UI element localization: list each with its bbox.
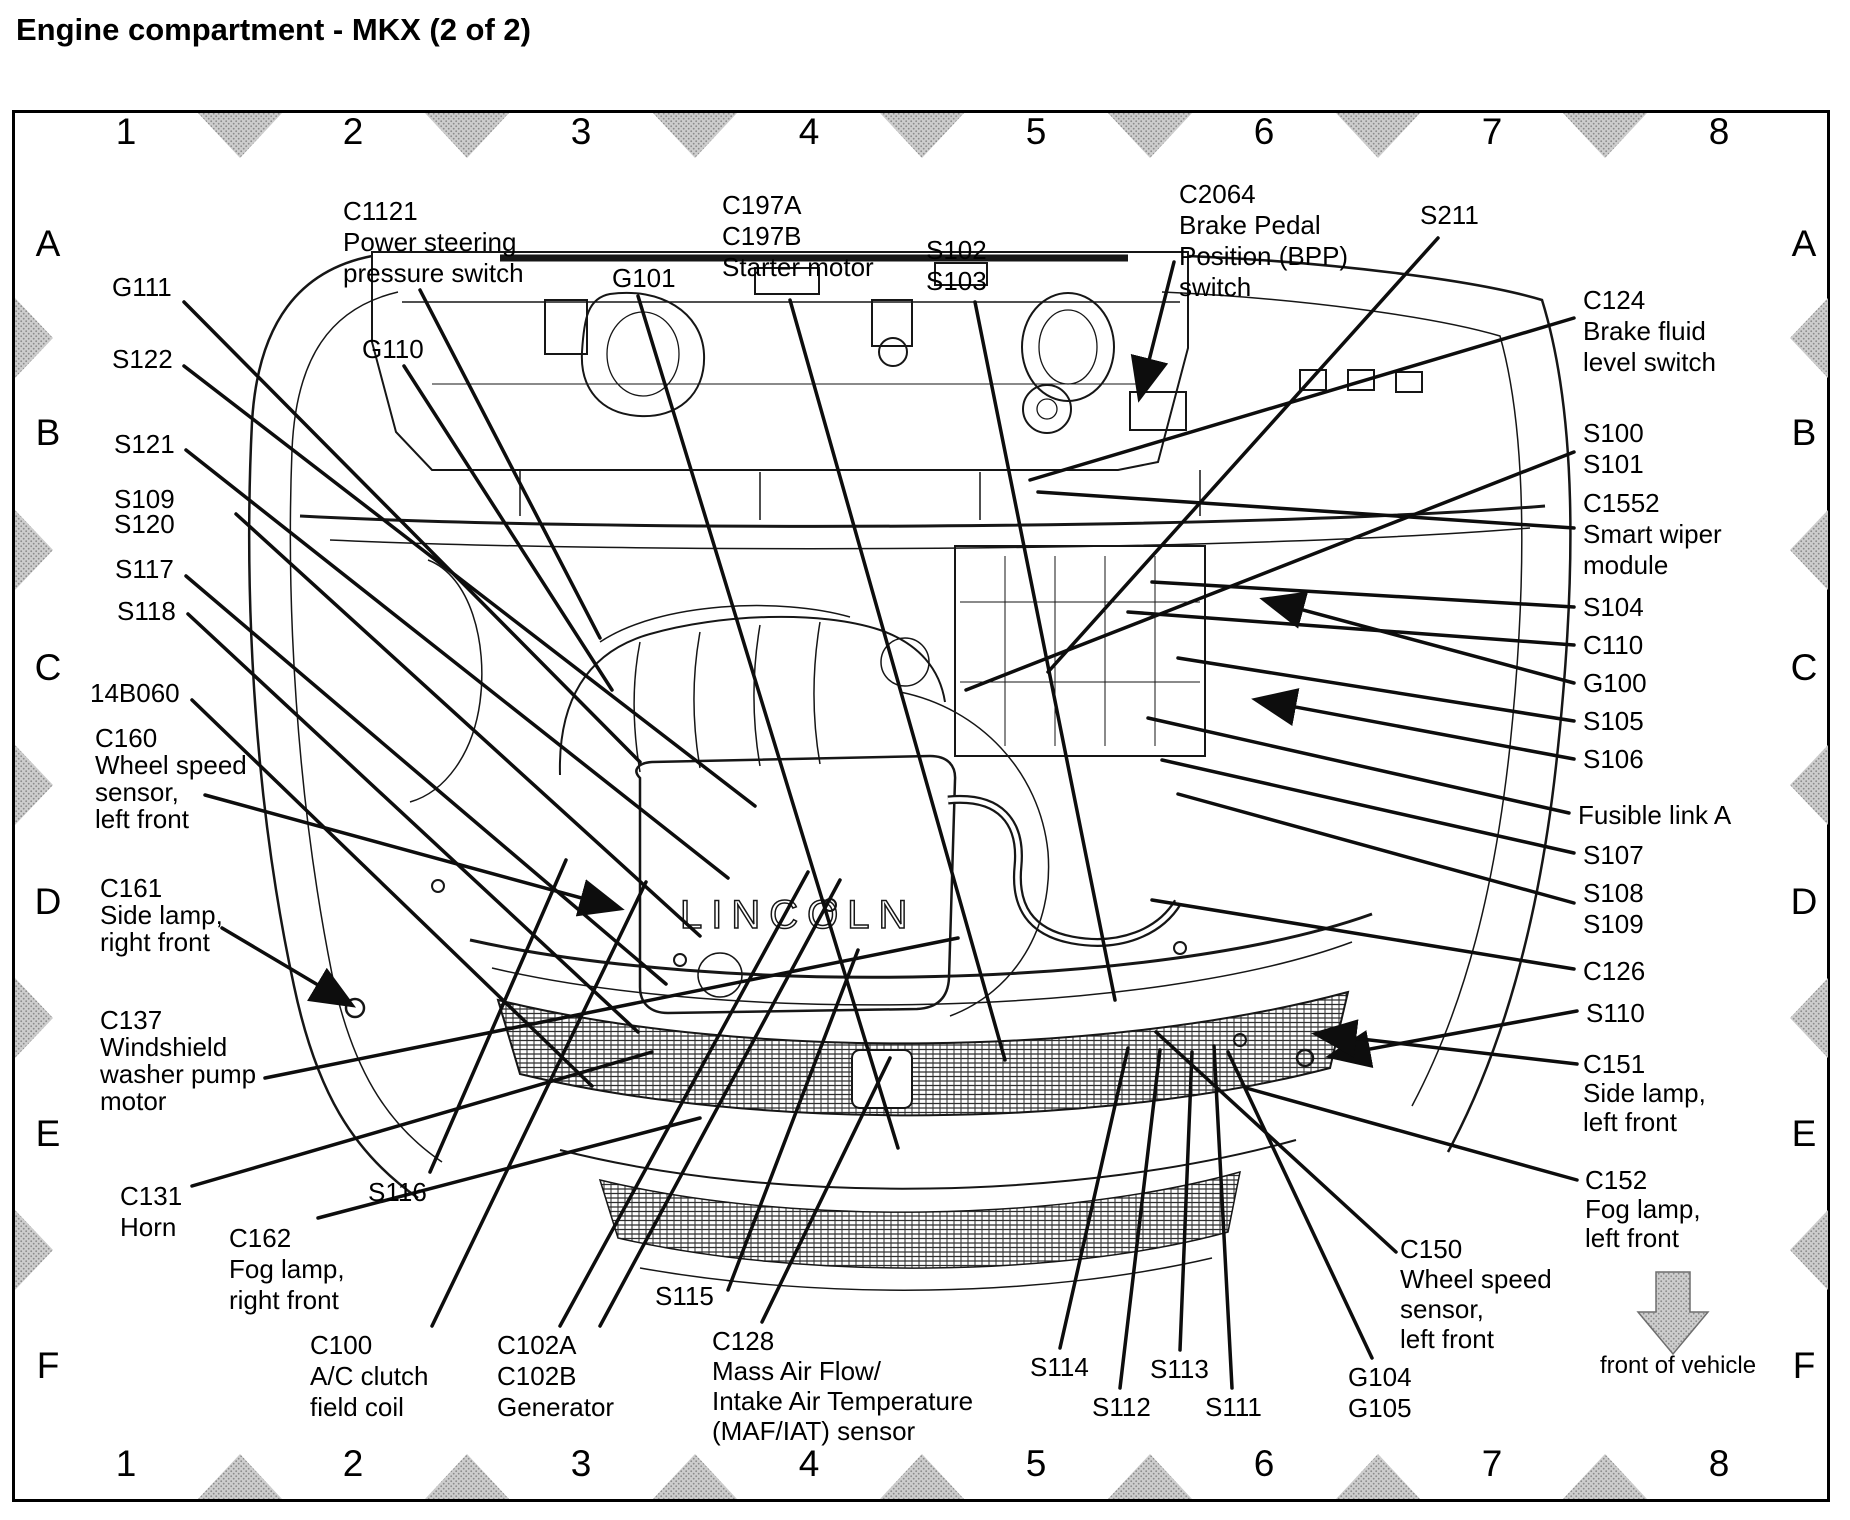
callout-c110: C110	[1583, 630, 1643, 661]
engine-compartment-page: Engine compartment - MKX (2 of 2) 1 2 3 …	[0, 0, 1850, 1520]
callout-c160: C160Wheel speedsensor,left front	[95, 725, 247, 833]
callout-c126: C126	[1583, 956, 1645, 987]
callout-c161: C161Side lamp,right front	[100, 875, 223, 956]
callout-s114: S114	[1030, 1352, 1089, 1383]
callout-s109-s120: S109S120	[114, 487, 175, 537]
callout-g101: G101	[612, 263, 676, 294]
callout-c124: C124Brake fluidlevel switch	[1583, 285, 1716, 378]
callout-c151: C151Side lamp,left front	[1583, 1050, 1706, 1137]
callout-c137: C137Windshieldwasher pumpmotor	[100, 1007, 256, 1115]
callout-c100: C100A/C clutchfield coil	[310, 1330, 429, 1423]
callout-c197: C197AC197BStarter motor	[722, 190, 874, 283]
callout-s106: S106	[1583, 744, 1644, 775]
callout-s107: S107	[1583, 840, 1644, 871]
callout-g110: G110	[362, 334, 424, 365]
callout-c150: C150Wheel speedsensor,left front	[1400, 1234, 1552, 1354]
callout-c152: C152Fog lamp,left front	[1585, 1166, 1701, 1253]
callout-c128: C128Mass Air Flow/Intake Air Temperature…	[712, 1326, 973, 1446]
callout-g104-g105: G104G105	[1348, 1362, 1412, 1424]
callout-c131: C131Horn	[120, 1181, 182, 1243]
callout-c2064: C2064Brake PedalPosition (BPP)switch	[1179, 179, 1348, 303]
callout-c162: C162Fog lamp,right front	[229, 1223, 345, 1316]
callout-s117: S117	[115, 554, 174, 585]
callout-14b060: 14B060	[90, 678, 180, 709]
callout-c102: C102AC102BGenerator	[497, 1330, 614, 1423]
callout-s105: S105	[1583, 706, 1644, 737]
callout-s115: S115	[655, 1281, 714, 1312]
callout-s121: S121	[114, 429, 175, 460]
callout-s211: S211	[1420, 200, 1479, 231]
front-of-vehicle-arrow-icon	[1638, 1272, 1708, 1354]
callout-s108-s109: S108S109	[1583, 878, 1644, 940]
callout-s102-s103: S102S103	[926, 235, 987, 297]
callout-s116: S116	[368, 1177, 427, 1208]
callout-s100-s101: S100S101	[1583, 418, 1644, 480]
front-of-vehicle-label: front of vehicle	[1600, 1352, 1756, 1380]
callout-g100: G100	[1583, 668, 1647, 699]
callout-s111: S111	[1205, 1392, 1262, 1423]
callout-fusible-link-a: Fusible link A	[1578, 800, 1731, 831]
callout-s104: S104	[1583, 592, 1644, 623]
callout-s110: S110	[1586, 998, 1645, 1029]
callout-c1552: C1552Smart wipermodule	[1583, 488, 1722, 581]
engine-badge: LINCOLN	[680, 893, 916, 937]
callout-g111: G111	[112, 272, 172, 303]
callout-s122: S122	[112, 344, 173, 375]
callout-s118: S118	[117, 596, 176, 627]
callout-s113: S113	[1150, 1354, 1209, 1385]
callout-s112: S112	[1092, 1392, 1151, 1423]
callout-c1121: C1121Power steeringpressure switch	[343, 196, 524, 289]
